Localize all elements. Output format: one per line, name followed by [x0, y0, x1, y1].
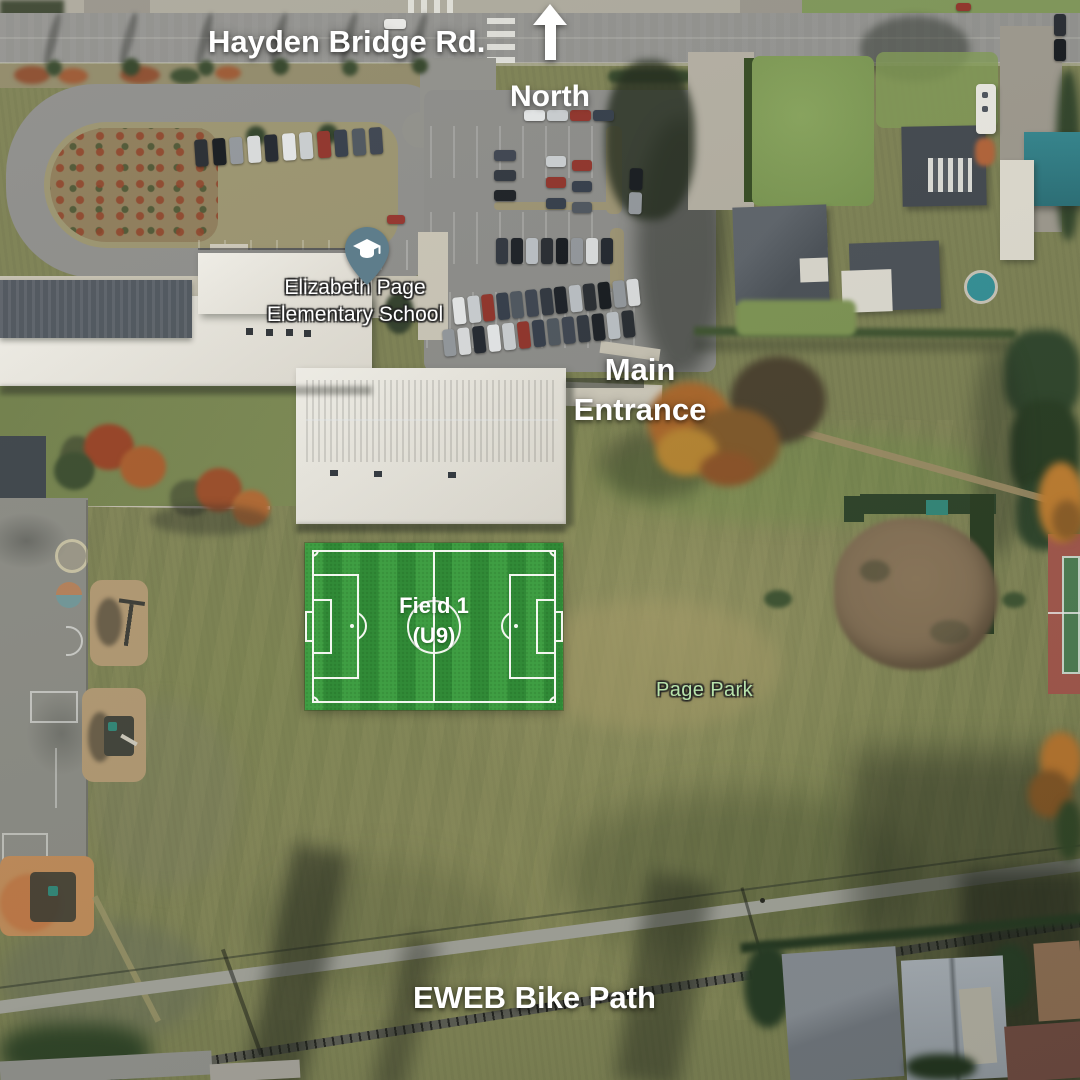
- car: [586, 238, 598, 264]
- rect: [379, 246, 381, 254]
- north-label: North: [508, 80, 592, 114]
- tree: [198, 60, 214, 76]
- painted-arc: [53, 626, 83, 656]
- tree: [342, 60, 358, 76]
- a: [14, 66, 50, 84]
- car: [494, 150, 516, 161]
- a: [694, 338, 1016, 352]
- a: [959, 987, 998, 1065]
- painted-court: [30, 691, 78, 723]
- annotated-satellite-map: Field 1 (U9) Hayden Bridge Rd. North Eli…: [0, 0, 1080, 1080]
- road-label: Hayden Bridge Rd.: [208, 24, 485, 60]
- play-structure: [30, 872, 76, 922]
- tree: [46, 60, 62, 76]
- a: [304, 330, 311, 337]
- car: [387, 215, 405, 224]
- a: [975, 138, 995, 166]
- bush: [1002, 592, 1026, 608]
- a: [760, 898, 765, 903]
- field-division: (U9): [305, 621, 563, 651]
- a: [108, 722, 117, 731]
- tree: [412, 58, 428, 74]
- a: [844, 496, 864, 522]
- car: [246, 135, 261, 163]
- a: [55, 748, 57, 808]
- autumn-tree: [120, 446, 166, 488]
- car: [496, 238, 508, 264]
- house: [1004, 1021, 1080, 1080]
- a: [374, 471, 382, 477]
- div: Entrance: [560, 390, 720, 430]
- car: [194, 139, 209, 167]
- a: [982, 92, 988, 98]
- a: [330, 470, 338, 476]
- lawn: [736, 300, 856, 336]
- car: [281, 133, 296, 161]
- tree: [54, 452, 94, 490]
- car: [494, 190, 516, 201]
- car: [334, 129, 349, 157]
- a: [150, 505, 270, 535]
- car: [629, 168, 643, 190]
- a: [1048, 612, 1080, 614]
- school-building-dark-roof: [0, 280, 192, 338]
- car: [299, 132, 314, 160]
- car: [572, 202, 592, 213]
- tree: [906, 1054, 976, 1080]
- a: [930, 620, 970, 644]
- lawn: [752, 56, 874, 206]
- car: [211, 138, 226, 166]
- a: [448, 472, 456, 478]
- house: [732, 204, 829, 305]
- autumn-tree: [700, 452, 756, 486]
- field-label: Field 1 (U9): [305, 591, 563, 651]
- car: [511, 238, 523, 264]
- car: [956, 3, 971, 11]
- div: Main: [560, 350, 720, 390]
- tree: [122, 58, 140, 76]
- a: [1062, 556, 1080, 674]
- north-indicator: North: [508, 4, 592, 120]
- school-pin-icon: [344, 226, 390, 286]
- tree: [272, 58, 289, 75]
- a: [605, 60, 695, 220]
- a: [296, 524, 566, 533]
- car: [264, 134, 279, 162]
- soccer-field-overlay: Field 1 (U9): [305, 543, 563, 710]
- car: [546, 198, 566, 209]
- car: [571, 238, 583, 264]
- a: [286, 329, 293, 336]
- car: [494, 170, 516, 181]
- a: [58, 68, 88, 84]
- car: [541, 238, 553, 264]
- a: [246, 328, 253, 335]
- park-bench: [926, 500, 948, 515]
- a: [928, 158, 972, 192]
- house: [782, 946, 905, 1080]
- car: [1054, 14, 1066, 36]
- car: [369, 127, 384, 155]
- car: [572, 160, 592, 171]
- tree: [1056, 800, 1080, 860]
- courtyard-lawn: [0, 382, 308, 506]
- bush: [764, 590, 792, 608]
- car: [546, 156, 566, 167]
- car: [316, 131, 331, 159]
- bike-path-label: EWEB Bike Path: [413, 980, 656, 1016]
- painted-circle: [56, 582, 82, 608]
- car: [601, 238, 613, 264]
- shed: [1000, 160, 1034, 260]
- a: [306, 419, 558, 421]
- island-landscaping: [50, 128, 218, 242]
- car: [1054, 39, 1066, 61]
- a: [215, 66, 241, 80]
- field-name: Field 1: [305, 591, 563, 621]
- a: [0, 386, 372, 395]
- car: [546, 177, 566, 188]
- car: [593, 110, 614, 121]
- painted-circle: [55, 539, 89, 573]
- car: [628, 192, 642, 214]
- car: [572, 181, 592, 192]
- autumn-tree: [1052, 500, 1080, 540]
- house: [1033, 940, 1080, 1021]
- a: [48, 886, 58, 896]
- a: [982, 106, 988, 112]
- a: [170, 68, 200, 84]
- north-arrow-shaft: [545, 22, 556, 60]
- park-label: Page Park: [656, 679, 753, 702]
- car: [351, 128, 366, 156]
- pool: [964, 270, 998, 304]
- car: [526, 238, 538, 264]
- a: [266, 329, 273, 336]
- main-entrance-label: Main Entrance: [560, 350, 720, 430]
- a: [210, 1060, 301, 1080]
- car: [556, 238, 568, 264]
- car: [229, 137, 244, 165]
- baseball-infield: [834, 518, 998, 670]
- a: [800, 258, 829, 283]
- crosswalk: [408, 0, 460, 13]
- school-label-line2: Elementary School: [230, 301, 480, 328]
- a: [860, 560, 890, 582]
